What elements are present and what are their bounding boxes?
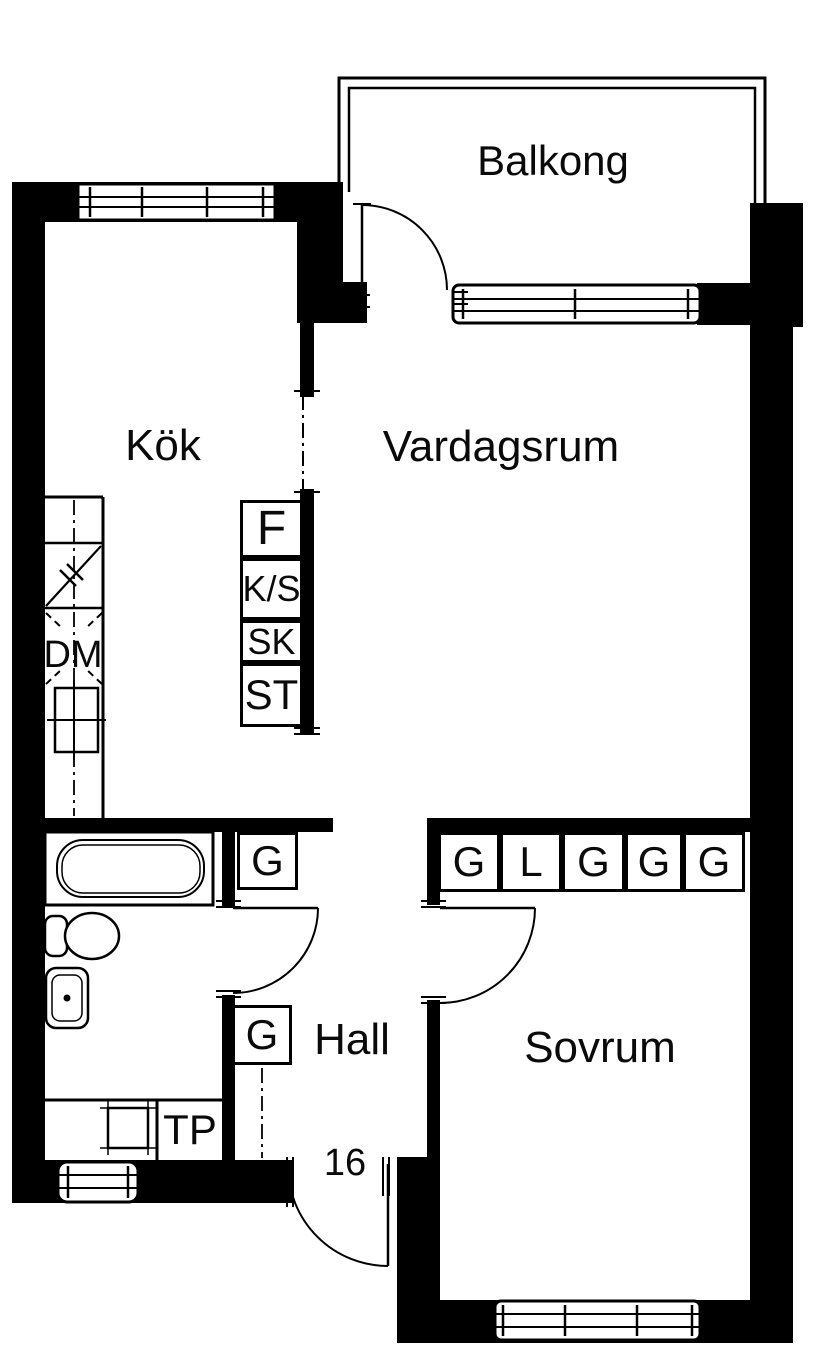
closet-bedroom-2: L (500, 832, 562, 892)
wall-left (12, 182, 45, 1203)
closet-bedroom-5: G (683, 832, 745, 892)
closet-hall-g: G (232, 1005, 292, 1065)
room-label-living-room: Vardagsrum (383, 425, 619, 469)
door-bedroom (421, 901, 535, 1003)
cabinet-fridge-freezer: K/S (240, 558, 303, 620)
closet-bedroom-3: G (562, 832, 625, 892)
door-bathroom (216, 901, 318, 997)
wall-living-window-right (697, 283, 753, 325)
stove (47, 680, 106, 760)
room-label-balcony: Balkong (477, 140, 629, 182)
toilet (45, 913, 119, 959)
wall-kitchen-living-upper (297, 222, 343, 282)
wall-hall-top (12, 818, 333, 832)
closet-bedroom-1: G (438, 832, 500, 892)
bathtub (45, 832, 213, 905)
entrance-number-label: 16 (324, 1144, 366, 1182)
cabinet-fridge: F (240, 500, 303, 558)
window-bedroom (495, 1301, 700, 1340)
room-label-bedroom: Sovrum (524, 1026, 676, 1070)
closet-bathroom-g: G (237, 832, 298, 890)
closet-bedroom-4: G (625, 832, 683, 892)
cabinet-pantry: ST (240, 663, 303, 727)
room-label-hall: Hall (314, 1018, 390, 1062)
wall-kitchen-living-mid (300, 323, 314, 397)
room-label-kitchen: Kök (125, 424, 201, 468)
window-living-room (452, 285, 700, 323)
dishwasher-label: DM (43, 636, 102, 674)
cabinet-cleaning: SK (240, 620, 303, 663)
wall-right (750, 203, 793, 1343)
washbasin (46, 968, 88, 1028)
floor-plan: Balkong Kök Vardagsrum Hall Sovrum DM TP… (0, 0, 829, 1367)
wall-right-top (750, 203, 803, 327)
drying-cabinet-label: TP (163, 1109, 217, 1151)
washing-machine (108, 1108, 148, 1148)
window-laundry (58, 1162, 138, 1202)
wall-bathroom-right-upper (222, 832, 235, 907)
floor-plan-drawing (0, 0, 829, 1367)
wall-bottom-left (12, 1160, 292, 1203)
wall-balcony-door-foot (297, 282, 367, 323)
window-kitchen (78, 184, 275, 220)
wall-bedroom-top (427, 818, 751, 832)
